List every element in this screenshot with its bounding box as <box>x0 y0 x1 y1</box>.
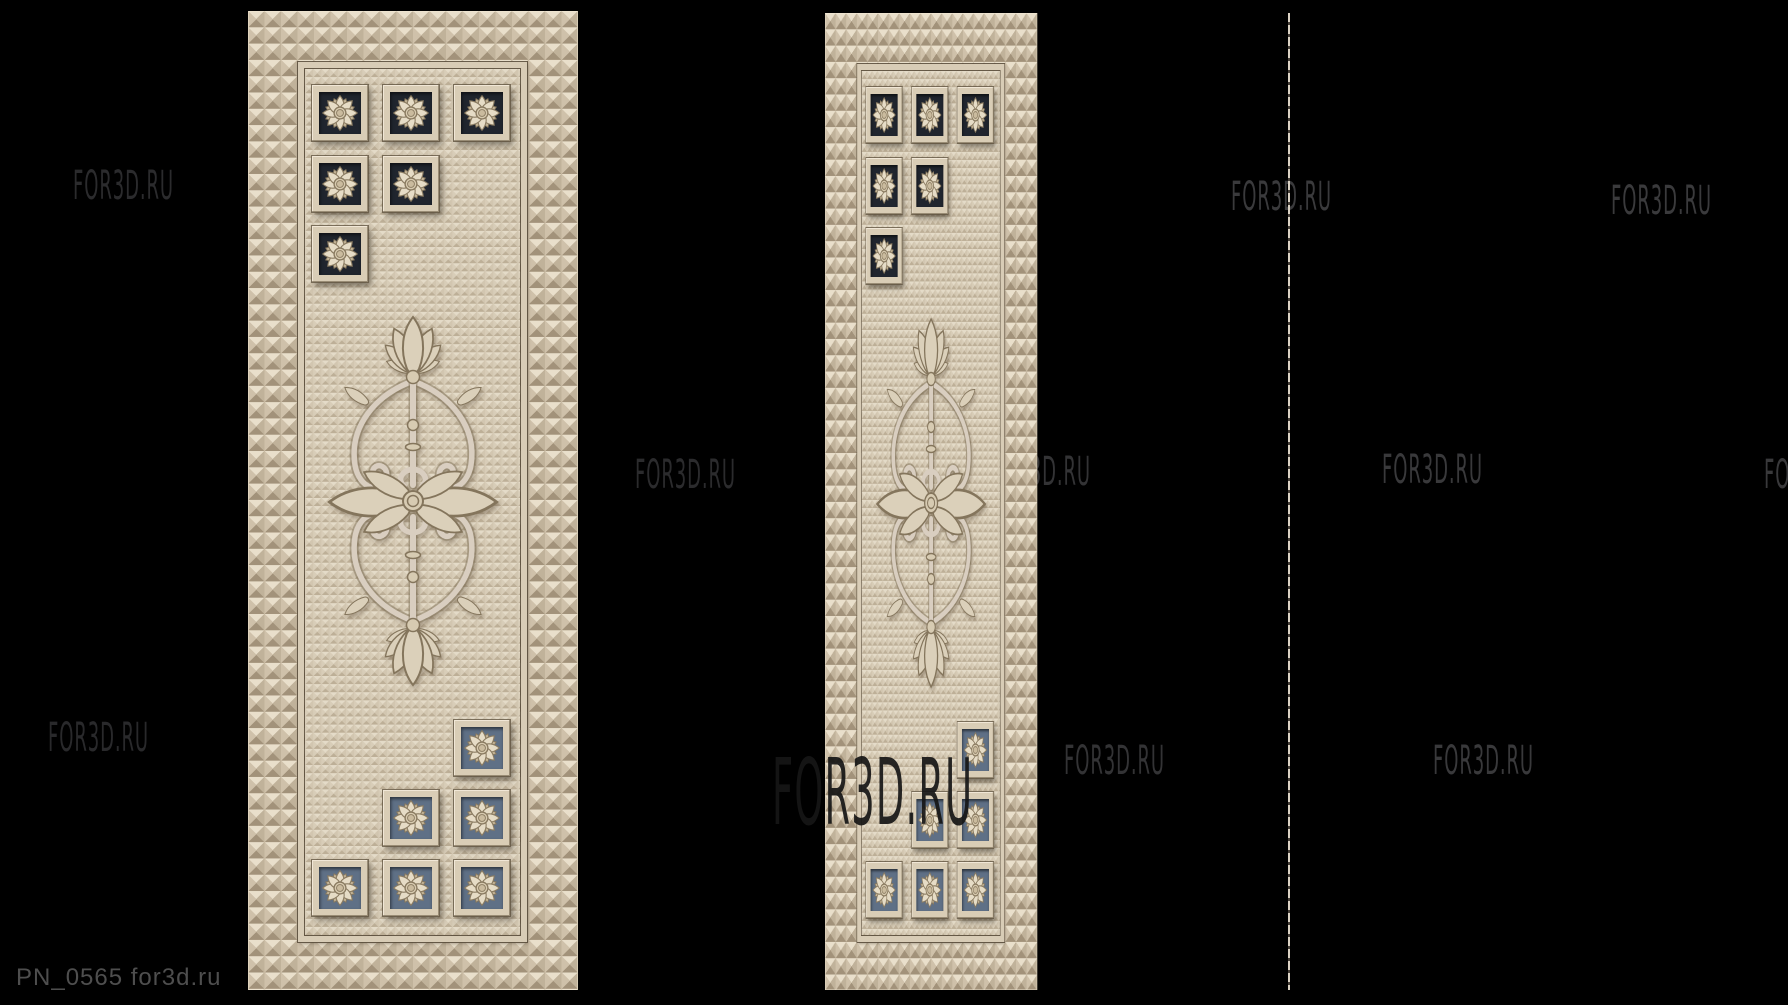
rosette-flower-icon <box>462 868 502 908</box>
rosette-tile-background <box>916 165 943 207</box>
rosette-tile-background <box>390 92 432 134</box>
rosette-flower-icon <box>871 236 897 276</box>
rosette-tile <box>312 156 368 212</box>
watermark: FOR3D.RU <box>635 455 736 495</box>
rosette-tile-background <box>319 163 361 205</box>
rosette-tile <box>454 85 510 141</box>
rosette-tile-background <box>871 94 898 136</box>
watermark: FOR3D.RU <box>48 718 149 758</box>
watermark-large: FOR3D.RU <box>772 747 973 839</box>
rosette-tile-background <box>916 94 943 136</box>
rosette-tile <box>454 860 510 916</box>
rosette-flower-icon <box>391 93 431 133</box>
rosette-flower-icon <box>963 95 989 135</box>
panel-edge-profile <box>1288 13 1290 990</box>
render-scene: FOR3D.RU PN_0565 for3d.ru FOR3D.RUFOR3D.… <box>0 0 1788 1005</box>
rosette-tile <box>866 158 902 214</box>
rosette-flower-icon <box>320 164 360 204</box>
rosette-flower-icon <box>917 95 943 135</box>
rosette-tile-background <box>390 163 432 205</box>
watermark: FOR3D.RU <box>73 166 174 206</box>
rosette-tile-background <box>871 235 898 277</box>
rosette-tile <box>957 87 993 143</box>
rosette-flower-icon <box>320 93 360 133</box>
door-panel-left <box>248 11 578 990</box>
rosette-flower-icon <box>320 868 360 908</box>
center-ornament <box>875 283 988 723</box>
rosette-tile <box>383 860 439 916</box>
rosette-tile-background <box>962 94 989 136</box>
rosette-tile-background <box>916 869 943 911</box>
rosette-tile <box>454 720 510 776</box>
rosette-tile-background <box>461 797 503 839</box>
rosette-flower-icon <box>320 234 360 274</box>
rosette-flower-icon <box>462 798 502 838</box>
center-ornament <box>325 281 501 721</box>
model-label: PN_0565 for3d.ru <box>16 966 221 990</box>
rosette-tile <box>383 790 439 846</box>
rosette-flower-icon <box>462 728 502 768</box>
rosette-tile <box>912 862 948 918</box>
center-ornament-carving <box>875 283 988 723</box>
rosette-tile-background <box>390 797 432 839</box>
rosette-tile <box>912 158 948 214</box>
rosette-tile <box>866 228 902 284</box>
center-ornament-carving <box>325 281 501 721</box>
watermark: FOR3D.RU <box>1764 455 1788 495</box>
rosette-flower-icon <box>871 95 897 135</box>
rosette-tile <box>383 85 439 141</box>
rosette-tile <box>312 85 368 141</box>
rosette-flower-icon <box>917 870 943 910</box>
rosette-tile <box>957 862 993 918</box>
rosette-flower-icon <box>391 798 431 838</box>
rosette-flower-icon <box>462 93 502 133</box>
rosette-tile <box>312 226 368 282</box>
rosette-tile-background <box>962 869 989 911</box>
watermark: FOR3D.RU <box>1433 741 1534 781</box>
rosette-tile-background <box>871 869 898 911</box>
rosette-tile <box>912 87 948 143</box>
watermark: FOR3D.RU <box>1611 181 1712 221</box>
rosette-tile-background <box>319 233 361 275</box>
rosette-tile <box>383 156 439 212</box>
rosette-tile-background <box>871 165 898 207</box>
rosette-flower-icon <box>871 870 897 910</box>
watermark: FOR3D.RU <box>1064 741 1165 781</box>
watermark: FOR3D.RU <box>1382 450 1483 490</box>
rosette-tile-background <box>461 867 503 909</box>
rosette-tile-background <box>319 92 361 134</box>
rosette-tile <box>312 860 368 916</box>
rosette-tile-background <box>461 727 503 769</box>
rosette-flower-icon <box>871 166 897 206</box>
rosette-flower-icon <box>963 870 989 910</box>
rosette-flower-icon <box>917 166 943 206</box>
rosette-flower-icon <box>391 164 431 204</box>
rosette-tile-background <box>390 867 432 909</box>
rosette-tile <box>454 790 510 846</box>
rosette-tile-background <box>319 867 361 909</box>
rosette-flower-icon <box>391 868 431 908</box>
rosette-tile <box>866 87 902 143</box>
watermark: FOR3D.RU <box>1231 177 1332 217</box>
rosette-tile-background <box>461 92 503 134</box>
rosette-tile <box>866 862 902 918</box>
